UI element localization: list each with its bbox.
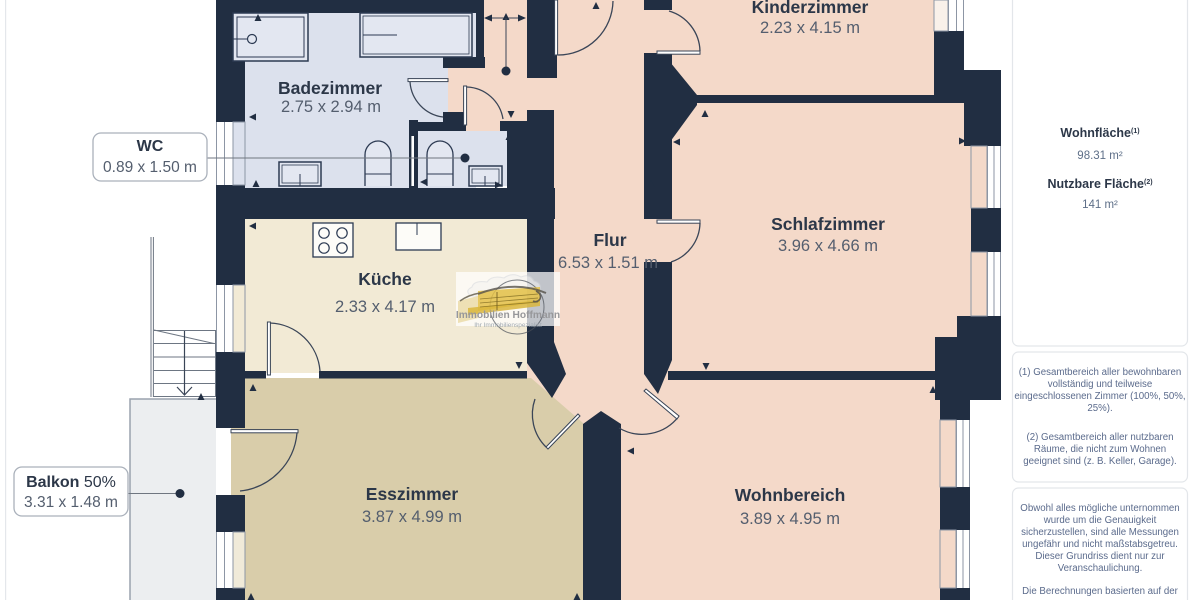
svg-text:Wohnfläche(1): Wohnfläche(1)	[1060, 126, 1139, 140]
svg-text:Esszimmer: Esszimmer	[366, 484, 459, 504]
svg-text:2.23 x 4.15 m: 2.23 x 4.15 m	[760, 19, 860, 37]
svg-text:Obwohl alles mögliche unternom: Obwohl alles mögliche unternommen	[1020, 503, 1179, 514]
svg-text:Immobilien Hoffmann: Immobilien Hoffmann	[456, 310, 560, 321]
svg-text:(2) Gesamtbereich aller nutzba: (2) Gesamtbereich aller nutzbaren	[1027, 432, 1174, 443]
svg-text:Räume, die nicht zum Wohnen: Räume, die nicht zum Wohnen	[1034, 444, 1166, 455]
svg-text:vollständig und teilweise: vollständig und teilweise	[1048, 379, 1152, 390]
svg-text:Schlafzimmer: Schlafzimmer	[771, 214, 885, 234]
svg-text:3.87 x 4.99 m: 3.87 x 4.99 m	[362, 508, 462, 526]
svg-text:Veranschaulichung.: Veranschaulichung.	[1058, 563, 1143, 574]
svg-text:Balkon 50%: Balkon 50%	[26, 474, 116, 491]
svg-text:Ihr Immobilienspezialist: Ihr Immobilienspezialist	[474, 322, 542, 329]
svg-text:98.31 m²: 98.31 m²	[1077, 150, 1123, 162]
svg-text:3.89 x 4.95 m: 3.89 x 4.95 m	[740, 510, 840, 528]
svg-text:Flur: Flur	[593, 230, 626, 250]
svg-text:25%).: 25%).	[1087, 403, 1112, 414]
svg-text:geeignet sind (z. B. Keller, G: geeignet sind (z. B. Keller, Garage).	[1023, 456, 1176, 467]
svg-text:0.89 x 1.50 m: 0.89 x 1.50 m	[103, 159, 197, 176]
svg-text:WC: WC	[137, 138, 164, 155]
svg-text:141 m²: 141 m²	[1082, 199, 1118, 211]
svg-text:wurde um die Genauigkeit: wurde um die Genauigkeit	[1043, 515, 1157, 526]
svg-text:eingeschlossenen Zimmer (100%,: eingeschlossenen Zimmer (100%, 50%,	[1014, 391, 1185, 402]
svg-text:Wohnbereich: Wohnbereich	[735, 485, 846, 505]
svg-text:6.53 x 1.51 m: 6.53 x 1.51 m	[558, 254, 658, 272]
svg-text:2.33 x 4.17 m: 2.33 x 4.17 m	[335, 298, 435, 316]
svg-text:3.96 x 4.66 m: 3.96 x 4.66 m	[778, 237, 878, 255]
svg-text:Dieser Grundriss dient nur zur: Dieser Grundriss dient nur zur	[1035, 551, 1165, 562]
svg-text:2.75 x 2.94 m: 2.75 x 2.94 m	[281, 98, 381, 116]
svg-text:Die Berechnungen basierten auf: Die Berechnungen basierten auf der	[1022, 586, 1178, 597]
svg-text:Nutzbare Fläche(2): Nutzbare Fläche(2)	[1047, 177, 1152, 191]
svg-text:ungefähr und nicht maßstabsget: ungefähr und nicht maßstabsgetreu.	[1022, 539, 1178, 550]
svg-text:(1) Gesamtbereich aller bewohn: (1) Gesamtbereich aller bewohnbaren	[1019, 367, 1182, 378]
svg-text:Badezimmer: Badezimmer	[278, 78, 382, 98]
svg-text:Kinderzimmer: Kinderzimmer	[752, 0, 869, 17]
svg-text:Küche: Küche	[358, 269, 412, 289]
svg-text:3.31 x 1.48 m: 3.31 x 1.48 m	[24, 494, 118, 511]
svg-text:sicherzustellen, sind alle Mes: sicherzustellen, sind alle Messungen	[1021, 527, 1179, 538]
